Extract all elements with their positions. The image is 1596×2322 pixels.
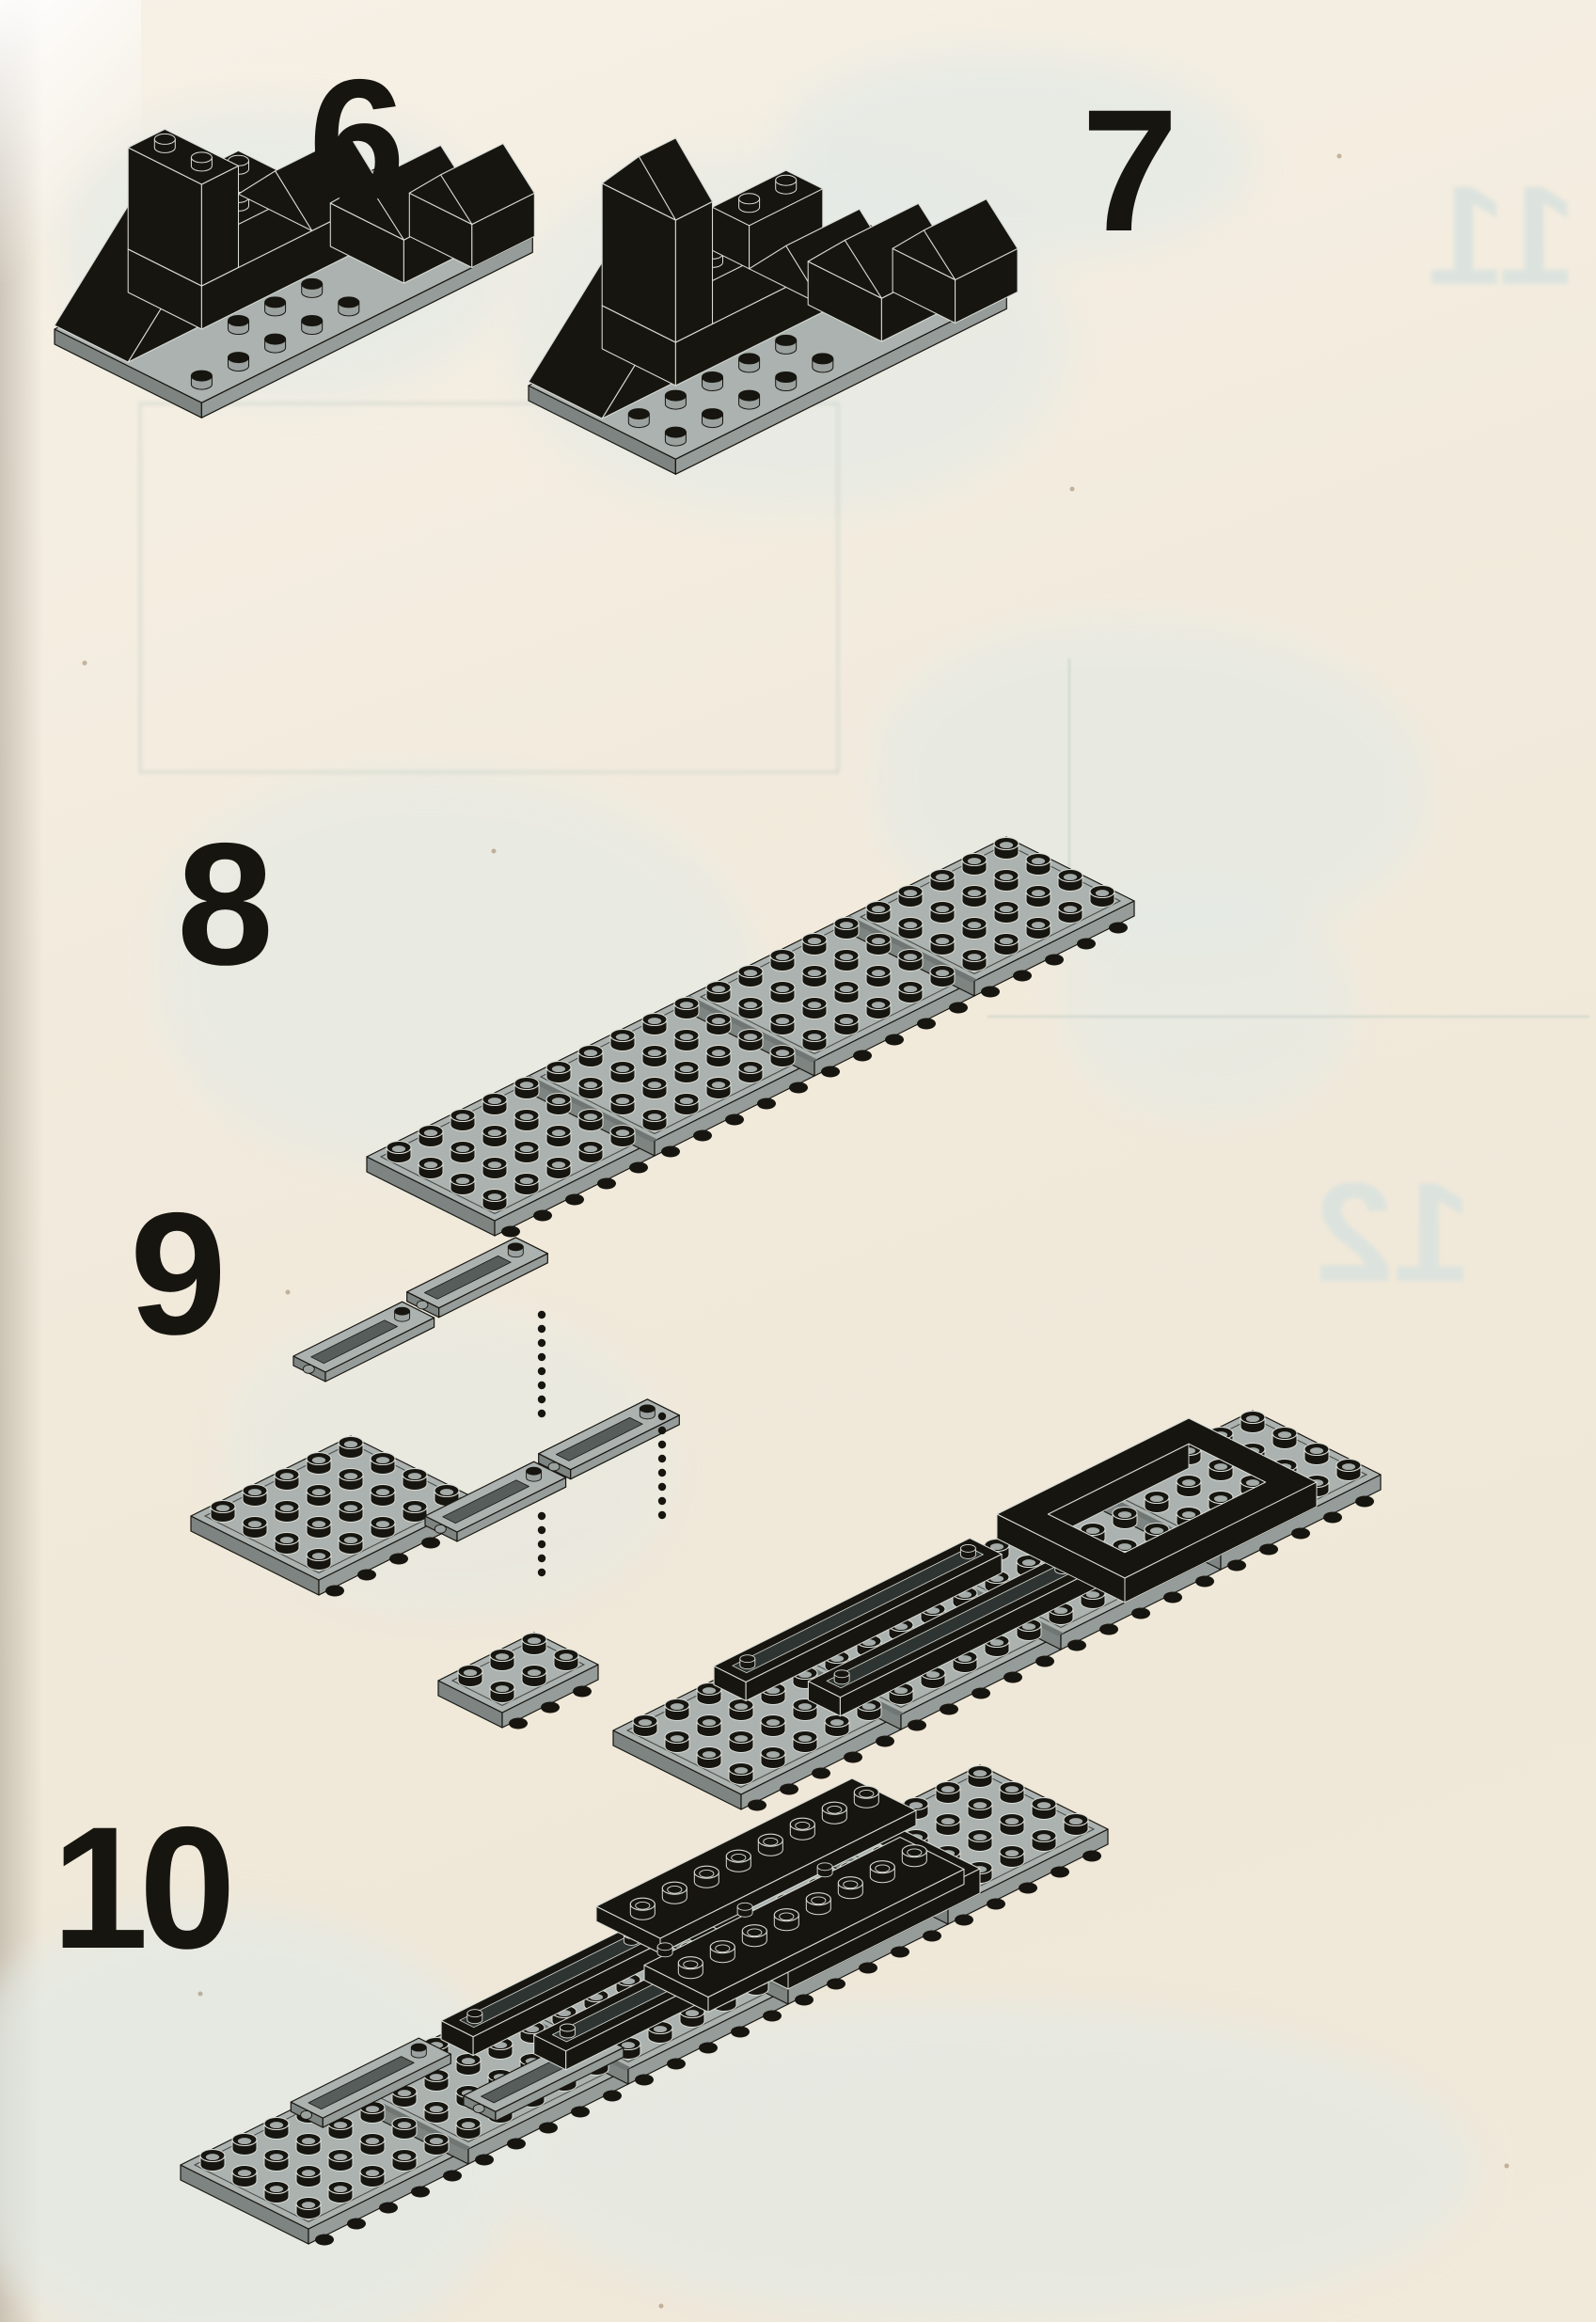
step-8-figure <box>367 837 1134 1238</box>
step-8-label: 8 <box>177 818 268 992</box>
instruction-page: 11 12 6 7 8 9 10 <box>0 0 1596 2322</box>
step-7-label: 7 <box>1082 85 1173 259</box>
step-6-figure <box>55 129 534 418</box>
step-10-label: 10 <box>52 1802 227 1976</box>
step-10-figure <box>181 1765 1108 2246</box>
step-6-label: 6 <box>308 55 400 229</box>
step-7-figure <box>529 138 1018 474</box>
lego-step-illustrations <box>0 0 1596 2322</box>
step-9-figure <box>191 1238 1381 1811</box>
step-9-label: 9 <box>130 1188 221 1362</box>
